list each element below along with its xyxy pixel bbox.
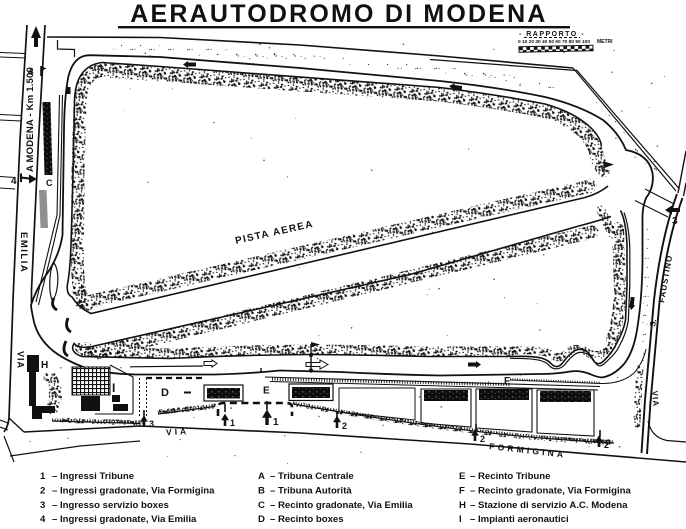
svg-text:0 10 20 30 40 50 60 70 80 90 1: 0 10 20 30 40 50 60 70 80 90 100 [518,39,590,45]
svg-text:2: 2 [40,486,45,497]
svg-text:1: 1 [40,471,46,482]
svg-text:– Recinto gradonate, Via Form: – Recinto gradonate, Via Formigina [470,486,631,497]
svg-text:F: F [504,376,510,387]
svg-text:VIA: VIA [166,426,190,437]
svg-text:A: A [258,471,265,482]
svg-text:- RAPPORTO -: - RAPPORTO - [519,31,585,38]
svg-text:VIA: VIA [16,351,26,369]
svg-text:3: 3 [672,216,678,227]
svg-text:D: D [258,514,265,525]
svg-text:– Recinto gradonate, Via Emil: – Recinto gradonate, Via Emilia [270,500,413,511]
svg-text:– Ingressi gradonate, Via Emi: – Ingressi gradonate, Via Emilia [52,514,197,525]
svg-text:4: 4 [11,176,17,187]
svg-text:H: H [459,500,466,511]
svg-text:I: I [459,514,462,525]
svg-text:METRI: METRI [597,39,613,45]
svg-text:I: I [112,381,115,395]
svg-text:2: 2 [604,440,609,450]
svg-text:1: 1 [230,418,235,428]
svg-text:– Recinto boxes: – Recinto boxes [270,514,344,525]
svg-text:2: 2 [480,434,485,444]
svg-text:AERAUTODROMO DI MODENA: AERAUTODROMO DI MODENA [130,0,547,28]
svg-text:– Tribuna Centrale: – Tribuna Centrale [270,471,354,482]
svg-text:– Ingresso servizio boxes: – Ingresso servizio boxes [52,500,169,511]
svg-text:– Ingressi gradonate, Via For: – Ingressi gradonate, Via Formigina [52,486,215,497]
svg-text:VIA: VIA [650,390,660,407]
svg-text:3: 3 [149,419,154,429]
svg-text:C: C [46,178,53,188]
svg-text:H: H [41,360,48,371]
svg-text:B: B [258,486,265,497]
svg-text:– Recinto Tribune: – Recinto Tribune [470,471,551,482]
svg-text:– Stazione di servizio A.C. M: – Stazione di servizio A.C. Modena [470,500,628,511]
svg-text:1: 1 [273,417,279,428]
svg-text:3: 3 [40,500,45,511]
svg-text:– Impianti aeronautici: – Impianti aeronautici [470,514,569,525]
svg-text:2: 2 [342,421,347,431]
svg-text:E: E [263,386,270,397]
svg-text:C: C [258,500,265,511]
svg-text:D: D [161,387,169,399]
svg-text:4: 4 [40,514,46,525]
svg-text:– Tribuna Autorità: – Tribuna Autorità [270,486,352,497]
svg-text:A MODENA - Km 1.500: A MODENA - Km 1.500 [25,67,36,172]
svg-text:S.: S. [648,318,658,327]
svg-text:EMILIA: EMILIA [18,232,29,273]
svg-text:E: E [459,471,466,482]
svg-text:F: F [459,486,465,497]
svg-text:– Ingressi Tribune: – Ingressi Tribune [52,471,134,482]
